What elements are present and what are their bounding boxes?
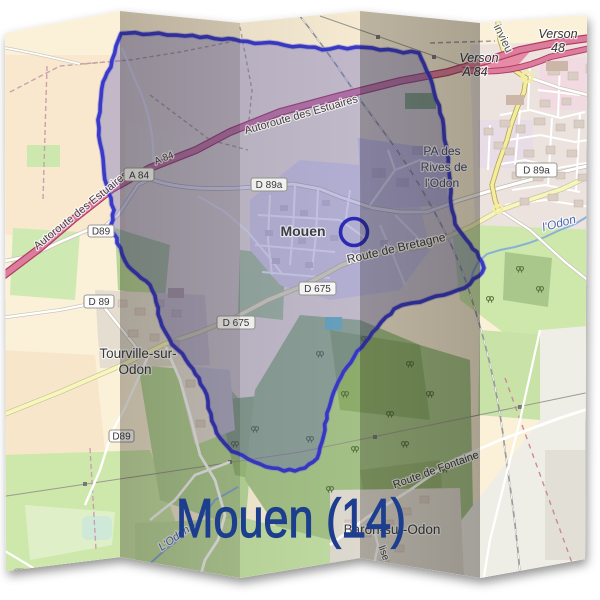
svg-text:48: 48 [551, 41, 565, 55]
svg-text:Mouen (14): Mouen (14) [176, 487, 406, 549]
svg-text:D 89a: D 89a [523, 166, 550, 177]
svg-text:Verson: Verson [538, 27, 577, 41]
svg-text:D89: D89 [92, 227, 111, 238]
svg-text:D 89: D 89 [88, 297, 110, 308]
svg-text:D 675: D 675 [20, 572, 47, 583]
